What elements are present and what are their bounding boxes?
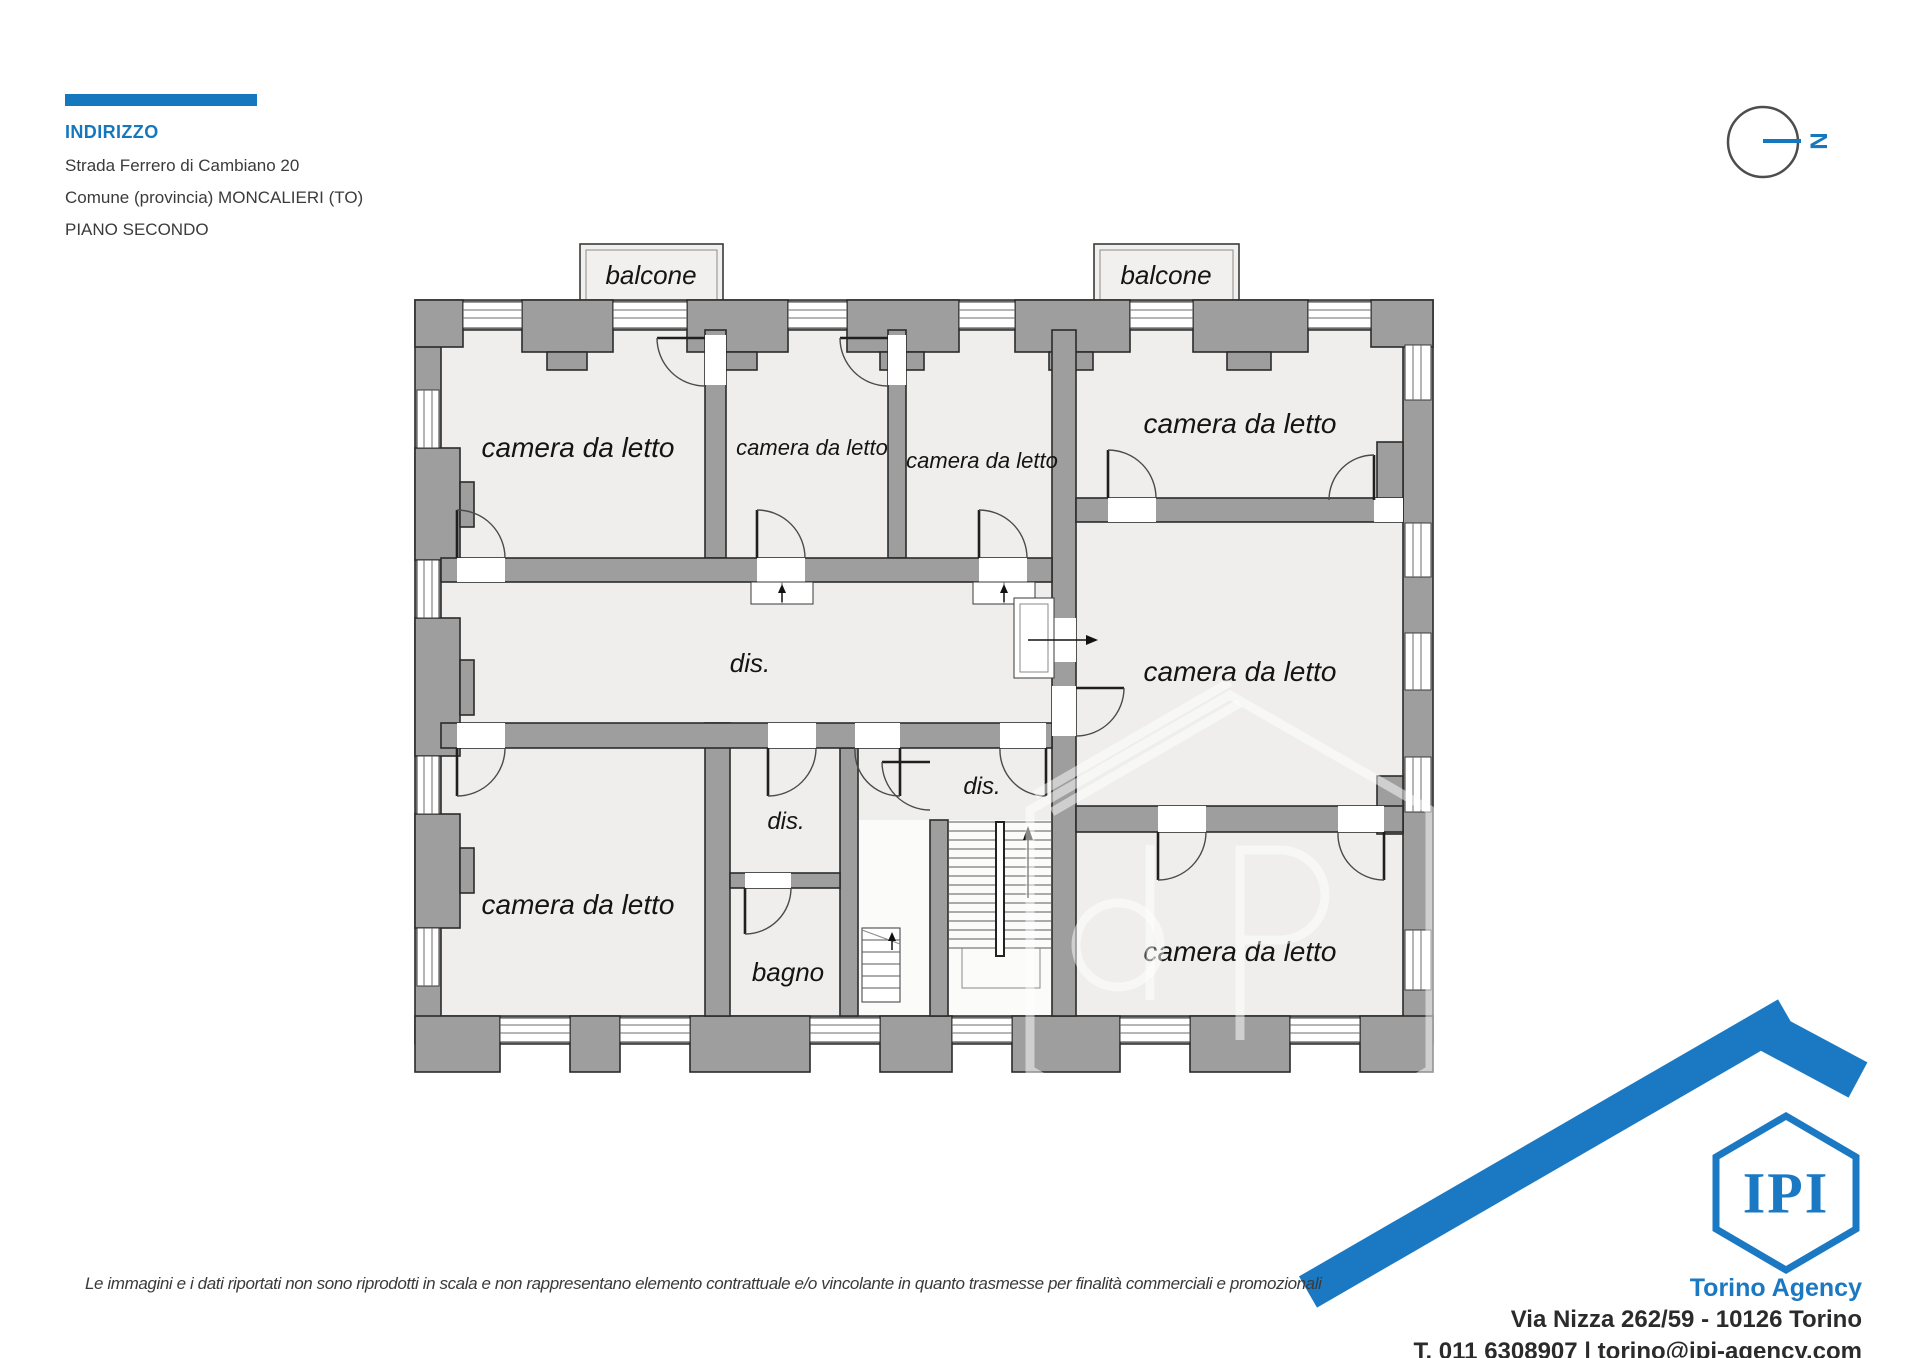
- window: [417, 560, 439, 618]
- window: [952, 1018, 1012, 1042]
- room-label-balcony-right: balcone: [1120, 260, 1211, 290]
- agency-address: Via Nizza 262/59 - 10126 Torino: [1511, 1306, 1862, 1334]
- window: [1130, 302, 1193, 328]
- window: [1120, 1018, 1190, 1042]
- window: [1405, 345, 1431, 400]
- window: [500, 1018, 570, 1042]
- window: [1405, 633, 1431, 690]
- agency-name: Torino Agency: [1690, 1274, 1862, 1303]
- secondary-staircase: [862, 928, 900, 1002]
- room-label-bedroom-top-mid-left: camera da letto: [736, 435, 888, 460]
- window: [417, 390, 439, 448]
- north-label: N: [1805, 132, 1832, 149]
- room-label-hallway-small: dis.: [767, 808, 804, 835]
- window: [810, 1018, 880, 1042]
- room-label-hallway-right: dis.: [963, 773, 1000, 800]
- floorplan-page: camera da letto camera da letto camera d…: [0, 0, 1920, 1358]
- disclaimer-text: Le immagini e i dati riportati non sono …: [85, 1274, 1321, 1294]
- room-label-bedroom-top-right: camera da letto: [1144, 408, 1337, 439]
- room-label-bedroom-top-left: camera da letto: [482, 432, 675, 463]
- window: [613, 302, 687, 328]
- room-label-hallway-main: dis.: [730, 648, 770, 678]
- header-floor: PIANO SECONDO: [65, 220, 209, 240]
- room-label-bedroom-bottom-left: camera da letto: [482, 889, 675, 920]
- header-title: INDIRIZZO: [65, 122, 159, 143]
- room-label-balcony-left: balcone: [605, 260, 696, 290]
- window: [1405, 523, 1431, 577]
- room-label-bedroom-top-mid-right: camera da letto: [906, 448, 1058, 473]
- window: [1290, 1018, 1360, 1042]
- compass-icon: N: [1728, 107, 1832, 177]
- window: [463, 302, 522, 328]
- agency-contacts: T. 011 6308907 | torino@ipi-agency.com: [1413, 1338, 1862, 1358]
- window: [417, 756, 439, 814]
- header-municipality: Comune (provincia) MONCALIERI (TO): [65, 188, 363, 208]
- header-address: Strada Ferrero di Cambiano 20: [65, 156, 299, 176]
- window: [788, 302, 847, 328]
- room-label-bedroom-mid-right: camera da letto: [1144, 656, 1337, 687]
- room-label-bathroom: bagno: [752, 957, 824, 987]
- header-accent-bar: [65, 94, 257, 106]
- window: [620, 1018, 690, 1042]
- window: [1308, 302, 1371, 328]
- window: [959, 302, 1015, 328]
- window: [417, 928, 439, 986]
- logo-text: IPI: [1743, 1161, 1830, 1226]
